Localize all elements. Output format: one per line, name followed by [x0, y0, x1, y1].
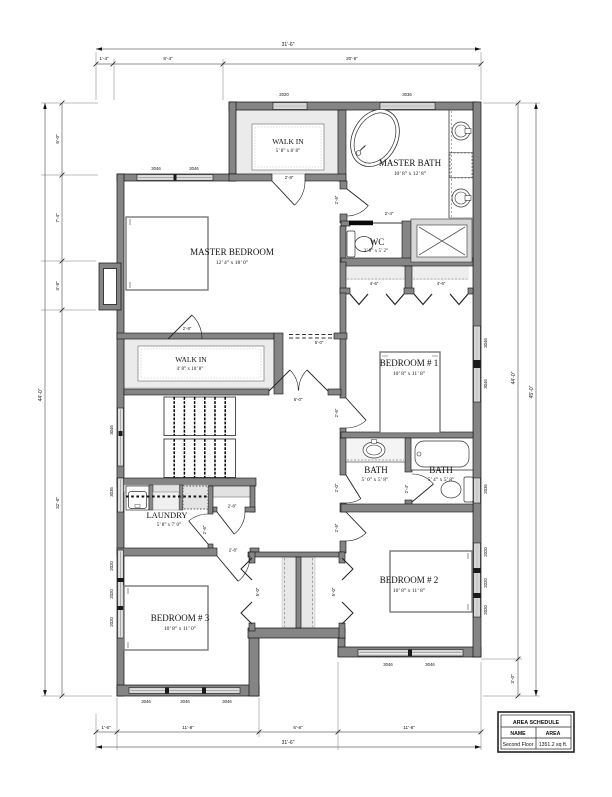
svg-text:3046: 3046 [151, 166, 161, 171]
svg-text:3046: 3046 [425, 662, 435, 667]
svg-text:3046: 3046 [189, 166, 199, 171]
svg-text:31’-6”: 31’-6” [282, 42, 295, 48]
svg-text:1351.2 sq ft.: 1351.2 sq ft. [539, 742, 568, 748]
svg-text:AREA: AREA [546, 731, 561, 737]
svg-text:2’-8”: 2’-8” [183, 326, 192, 331]
svg-text:Second Floor: Second Floor [503, 742, 534, 748]
svg-text:2020: 2020 [109, 561, 114, 571]
svg-text:5’ 8” x 8’ 8”: 5’ 8” x 8’ 8” [276, 149, 301, 154]
svg-text:2020: 2020 [109, 617, 114, 627]
svg-text:5’ 8” x 7’ 0”: 5’ 8” x 7’ 0” [157, 523, 182, 528]
svg-text:3036: 3036 [109, 487, 114, 497]
svg-text:44’-0”: 44’-0” [511, 371, 517, 384]
svg-text:2’-8”: 2’-8” [285, 175, 294, 180]
svg-text:MASTER BEDROOM: MASTER BEDROOM [190, 247, 274, 257]
svg-text:2’-4”: 2’-4” [404, 484, 409, 493]
svg-text:5’-0”: 5’-0” [255, 587, 260, 596]
svg-text:3’-8”: 3’-8” [55, 281, 60, 291]
svg-text:45’-0”: 45’-0” [529, 385, 535, 398]
svg-text:3036: 3036 [402, 92, 412, 97]
svg-text:3’ 0” x 5’ 2”: 3’ 0” x 5’ 2” [364, 249, 389, 254]
svg-text:2020: 2020 [483, 547, 488, 557]
svg-text:BEDROOM # 3: BEDROOM # 3 [151, 613, 210, 623]
svg-text:2020: 2020 [483, 605, 488, 615]
svg-text:WALK IN: WALK IN [175, 355, 207, 364]
svg-text:BEDROOM # 1: BEDROOM # 1 [380, 358, 439, 368]
svg-text:5’-0”: 5’-0” [315, 340, 324, 345]
svg-text:1’-4”: 1’-4” [99, 56, 109, 61]
svg-text:20’-6”: 20’-6” [346, 56, 358, 61]
svg-text:3046: 3046 [383, 662, 393, 667]
svg-text:10’ 8” x 12’ 8”: 10’ 8” x 12’ 8” [394, 171, 427, 177]
svg-text:8’-4”: 8’-4” [163, 56, 173, 61]
svg-text:AREA SCHEDULE: AREA SCHEDULE [513, 720, 560, 726]
svg-text:6’-8”: 6’-8” [293, 725, 303, 730]
svg-text:3046: 3046 [141, 699, 151, 704]
svg-text:2’-6”: 2’-6” [334, 523, 339, 532]
svg-text:2020: 2020 [109, 589, 114, 599]
svg-text:3046: 3046 [180, 699, 190, 704]
svg-text:3046: 3046 [483, 338, 488, 348]
svg-text:44’-0”: 44’-0” [38, 388, 44, 401]
svg-text:31’-6”: 31’-6” [282, 740, 295, 746]
svg-text:2020: 2020 [279, 92, 289, 97]
svg-text:4’ 8” x 10’ 8”: 4’ 8” x 10’ 8” [176, 367, 203, 372]
svg-text:5’ 4” x 5’ 8”: 5’ 4” x 5’ 8” [428, 477, 456, 483]
svg-text:12’ 4” x 18’ 0”: 12’ 4” x 18’ 0” [216, 260, 249, 266]
svg-text:WC: WC [370, 237, 385, 247]
svg-text:NAME: NAME [510, 731, 526, 737]
svg-text:5’ 0” x 5’ 8”: 5’ 0” x 5’ 8” [362, 477, 390, 483]
svg-text:10’ 8” x 11’ 0”: 10’ 8” x 11’ 0” [164, 626, 197, 632]
svg-text:MASTER BATH: MASTER BATH [379, 158, 442, 168]
svg-text:2’-8”: 2’-8” [228, 504, 237, 509]
svg-text:10’ 8” x 11’ 8”: 10’ 8” x 11’ 8” [393, 371, 426, 377]
svg-text:3046: 3046 [222, 699, 232, 704]
svg-text:2020: 2020 [483, 578, 488, 588]
svg-text:2’-6”: 2’-6” [334, 408, 339, 417]
svg-text:2’-8”: 2’-8” [229, 548, 238, 553]
svg-text:BATH: BATH [364, 465, 388, 475]
svg-text:2’-6”: 2’-6” [334, 195, 339, 204]
svg-text:10’ 8” x 11’ 8”: 10’ 8” x 11’ 8” [393, 588, 426, 594]
svg-text:2’-0”: 2’-0” [334, 483, 339, 492]
svg-text:3046: 3046 [109, 425, 114, 435]
svg-text:BATH: BATH [429, 465, 453, 475]
svg-text:6’-0”: 6’-0” [55, 134, 60, 144]
svg-text:4’-6”: 4’-6” [437, 281, 446, 286]
svg-text:5’-0”: 5’-0” [294, 397, 303, 402]
svg-text:32’-0”: 32’-0” [55, 497, 60, 509]
svg-text:4’-6”: 4’-6” [370, 281, 379, 286]
svg-text:11’-8”: 11’-8” [403, 725, 415, 730]
svg-text:3046: 3046 [483, 379, 488, 389]
svg-text:5’-0”: 5’-0” [331, 587, 336, 596]
svg-text:1’-6”: 1’-6” [101, 725, 111, 730]
svg-text:WALK IN: WALK IN [272, 137, 304, 146]
svg-text:BEDROOM # 2: BEDROOM # 2 [380, 575, 439, 585]
svg-text:LAUNDRY: LAUNDRY [146, 510, 187, 520]
svg-text:2’-6”: 2’-6” [202, 525, 207, 534]
svg-text:7’-4”: 7’-4” [55, 213, 60, 223]
svg-text:2036: 2036 [483, 484, 488, 494]
svg-text:2’-4”: 2’-4” [385, 211, 394, 216]
svg-text:3’-0”: 3’-0” [510, 674, 515, 684]
svg-text:11’-8”: 11’-8” [182, 725, 194, 730]
